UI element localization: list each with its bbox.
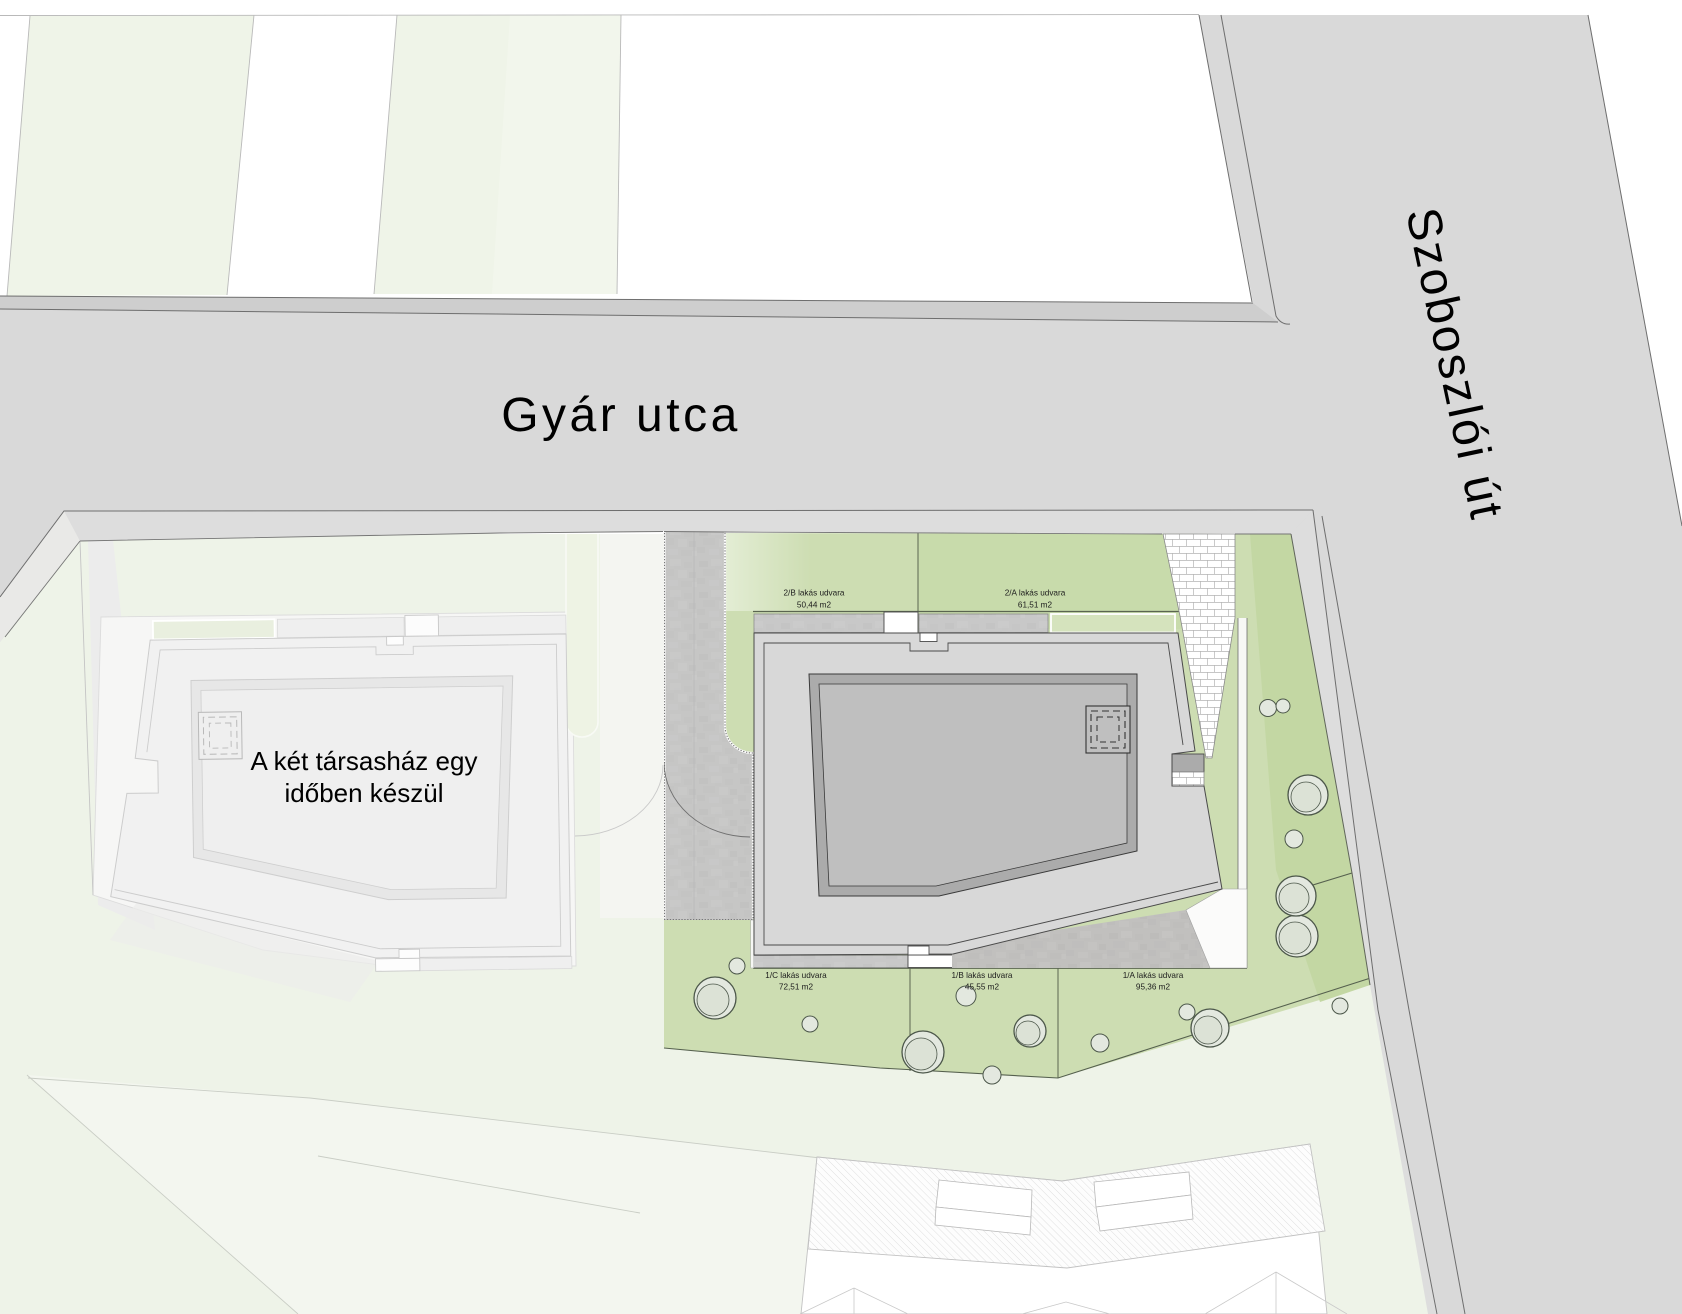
svg-text:1/B lakás udvara: 1/B lakás udvara: [952, 971, 1013, 980]
svg-text:2/B lakás udvara: 2/B lakás udvara: [784, 589, 845, 598]
svg-text:időben készül: időben készül: [285, 778, 444, 808]
svg-text:A két társasház egy: A két társasház egy: [251, 746, 478, 776]
svg-text:72,51 m2: 72,51 m2: [779, 983, 814, 992]
svg-text:1/A lakás udvara: 1/A lakás udvara: [1123, 971, 1184, 980]
svg-text:45,55 m2: 45,55 m2: [965, 983, 1000, 992]
svg-text:2/A lakás udvara: 2/A lakás udvara: [1005, 589, 1066, 598]
svg-text:1/C lakás udvara: 1/C lakás udvara: [765, 971, 827, 980]
svg-text:50,44 m2: 50,44 m2: [797, 601, 832, 610]
svg-text:Gyár utca: Gyár utca: [501, 389, 741, 442]
svg-text:61,51 m2: 61,51 m2: [1018, 601, 1053, 610]
svg-text:95,36 m2: 95,36 m2: [1136, 983, 1171, 992]
